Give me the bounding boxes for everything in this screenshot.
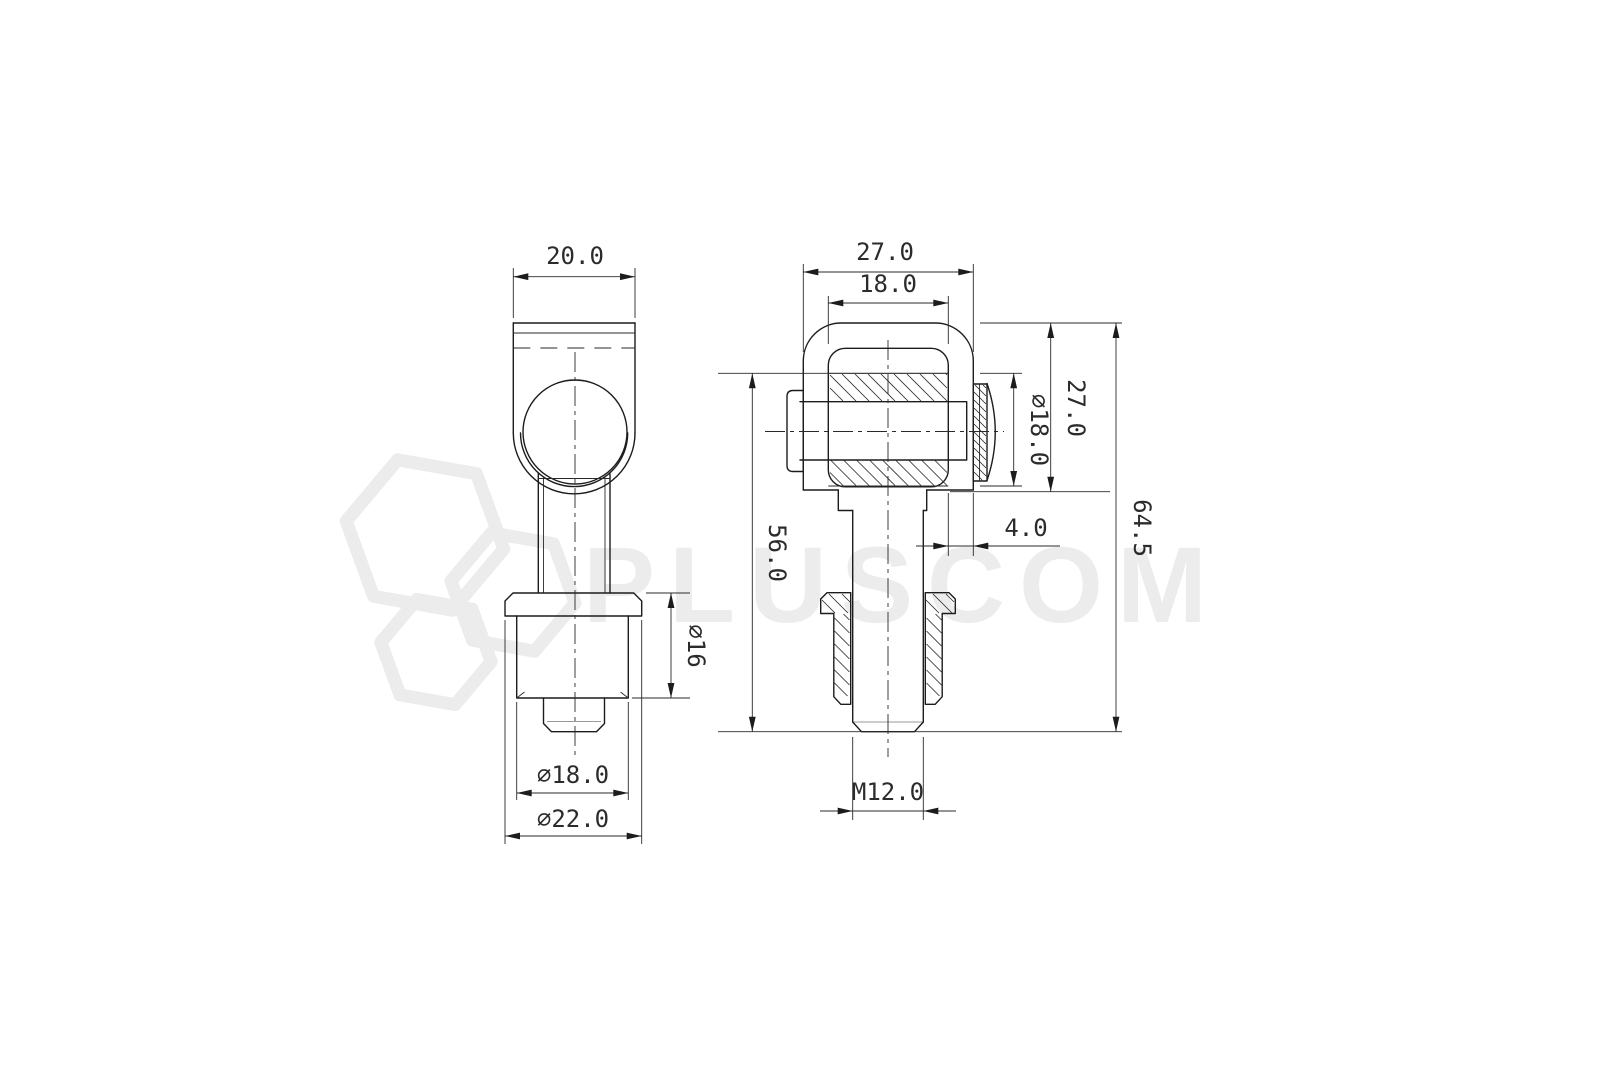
- dim-bore-dia: ⌀18.0: [517, 702, 629, 800]
- watermark-brand-text: PLUSCOM: [583, 524, 1221, 645]
- dome-cap: [987, 384, 995, 481]
- stud-tip-side: [544, 698, 605, 732]
- ball-hatch-lower: [830, 461, 947, 486]
- dim-ball-dia: ⌀18.0: [1014, 373, 1053, 486]
- dim-slot-width: 18.0: [828, 270, 948, 344]
- dim-label: 27.0: [1062, 379, 1090, 437]
- drawing-canvas: PLUSCOM 20.0 ⌀16: [0, 0, 1620, 1080]
- dim-label: ⌀18.0: [537, 761, 609, 789]
- dim-label: 64.5: [1128, 499, 1156, 557]
- dim-label: ⌀18.0: [1025, 394, 1053, 466]
- dim-label: ⌀22.0: [537, 805, 609, 833]
- washer-hatch: [974, 385, 986, 480]
- dim-label: 18.0: [859, 270, 917, 298]
- dim-label: 27.0: [856, 238, 914, 266]
- dim-label: 56.0: [763, 524, 791, 582]
- engineering-drawing: PLUSCOM 20.0 ⌀16: [0, 0, 1620, 1080]
- dim-head-height: 27.0: [1051, 323, 1090, 492]
- dim-label: 4.0: [1004, 514, 1047, 542]
- dim-label: ⌀16: [682, 624, 710, 667]
- ball-hatch-upper: [830, 374, 947, 401]
- bore-chamfer-marks: [517, 692, 629, 698]
- dim-label: 20.0: [546, 242, 604, 270]
- clevis-sides: [513, 323, 635, 433]
- dim-clevis-width: 20.0: [513, 242, 635, 318]
- collar: [838, 490, 926, 511]
- dim-label: M12.0: [852, 778, 924, 806]
- pin-body: [800, 402, 967, 460]
